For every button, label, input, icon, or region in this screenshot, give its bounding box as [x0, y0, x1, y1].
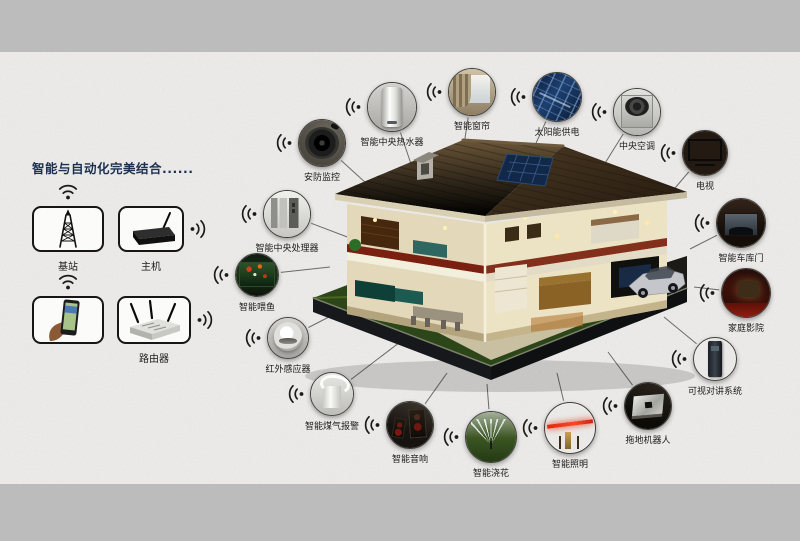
- device-photo: [267, 317, 309, 359]
- device-node: 太阳能供电: [532, 72, 582, 122]
- wifi-icon: [274, 133, 294, 153]
- wifi-icon: [508, 87, 528, 107]
- device-ring: 安防监控 智能中央热水器 智能窗帘 太阳能供电 中央空调: [0, 0, 800, 541]
- fish-photo: [236, 254, 278, 296]
- device-node: 可视对讲系统: [693, 337, 737, 381]
- wifi-icon: [424, 82, 444, 102]
- device-photo: [386, 401, 434, 449]
- device-photo: [465, 411, 517, 463]
- wifi-icon: [600, 396, 620, 416]
- water-heater-photo: [368, 83, 416, 131]
- device-label: 红外感应器: [265, 362, 310, 375]
- device-label: 电视: [696, 179, 714, 192]
- device-photo: [310, 372, 354, 416]
- device-label: 智能窗帘: [454, 119, 490, 132]
- device-node: 电视: [682, 130, 728, 176]
- lighting-photo: [545, 403, 595, 453]
- device-photo: [613, 88, 661, 136]
- device-photo: [544, 402, 596, 454]
- device-node: 安防监控: [298, 119, 346, 167]
- device-node: 智能车库门: [716, 198, 766, 248]
- device-label: 智能煤气报警: [305, 419, 359, 432]
- device-photo: [235, 253, 279, 297]
- top-gray-band: [0, 0, 800, 52]
- device-photo: [263, 190, 311, 238]
- device-photo: [682, 130, 728, 176]
- device-label: 智能车库门: [718, 251, 763, 264]
- bottom-gray-band: [0, 484, 800, 541]
- device-photo: [716, 198, 766, 248]
- device-label: 家庭影院: [728, 321, 764, 334]
- device-label: 智能中央处理器: [255, 241, 318, 254]
- wifi-icon: [441, 427, 461, 447]
- device-label: 可视对讲系统: [688, 384, 742, 397]
- solar-photo: [533, 73, 581, 121]
- device-label: 拖地机器人: [625, 433, 670, 446]
- theater-photo: [722, 269, 770, 317]
- speakers-photo: [387, 402, 433, 448]
- device-label: 安防监控: [304, 170, 340, 183]
- device-node: 智能照明: [544, 402, 596, 454]
- device-node: 智能中央热水器: [367, 82, 417, 132]
- device-node: 智能煤气报警: [310, 372, 354, 416]
- wifi-icon: [211, 265, 231, 285]
- intercom-photo: [694, 338, 736, 380]
- wifi-icon: [692, 213, 712, 233]
- curtain-photo: [449, 69, 495, 115]
- device-photo: [532, 72, 582, 122]
- wifi-icon: [669, 349, 689, 369]
- device-photo: [693, 337, 737, 381]
- device-label: 太阳能供电: [534, 125, 579, 138]
- device-label: 智能照明: [552, 457, 588, 470]
- device-label: 智能浇花: [473, 466, 509, 479]
- wifi-icon: [343, 97, 363, 117]
- device-photo: [721, 268, 771, 318]
- wifi-icon: [658, 143, 678, 163]
- wifi-icon: [243, 328, 263, 348]
- cpu-photo: [264, 191, 310, 237]
- tv-photo: [683, 131, 727, 175]
- gas-photo: [311, 373, 353, 415]
- wifi-icon: [362, 415, 382, 435]
- device-node: 智能喂鱼: [235, 253, 279, 297]
- wifi-icon: [239, 204, 259, 224]
- device-node: 智能音响: [386, 401, 434, 449]
- wifi-icon: [589, 102, 609, 122]
- device-node: 智能浇花: [465, 411, 517, 463]
- device-label: 智能音响: [392, 452, 428, 465]
- device-label: 智能喂鱼: [239, 300, 275, 313]
- device-label: 中央空调: [619, 139, 655, 152]
- ac-photo: [614, 89, 660, 135]
- wifi-icon: [697, 283, 717, 303]
- device-node: 智能中央处理器: [263, 190, 311, 238]
- security-photo: [299, 120, 345, 166]
- device-node: 中央空调: [613, 88, 661, 136]
- device-node: 智能窗帘: [448, 68, 496, 116]
- wifi-icon: [520, 418, 540, 438]
- device-photo: [624, 382, 672, 430]
- device-node: 拖地机器人: [624, 382, 672, 430]
- device-label: 智能中央热水器: [360, 135, 423, 148]
- device-photo: [367, 82, 417, 132]
- device-photo: [298, 119, 346, 167]
- device-node: 家庭影院: [721, 268, 771, 318]
- ir-photo: [268, 318, 308, 358]
- device-photo: [448, 68, 496, 116]
- device-node: 红外感应器: [267, 317, 309, 359]
- smart-home-poster: 智能与自动化完美结合...... 基站: [0, 0, 800, 541]
- robot-photo: [625, 383, 671, 429]
- sprinkler-photo: [466, 412, 516, 462]
- wifi-icon: [286, 384, 306, 404]
- garage-photo: [717, 199, 765, 247]
